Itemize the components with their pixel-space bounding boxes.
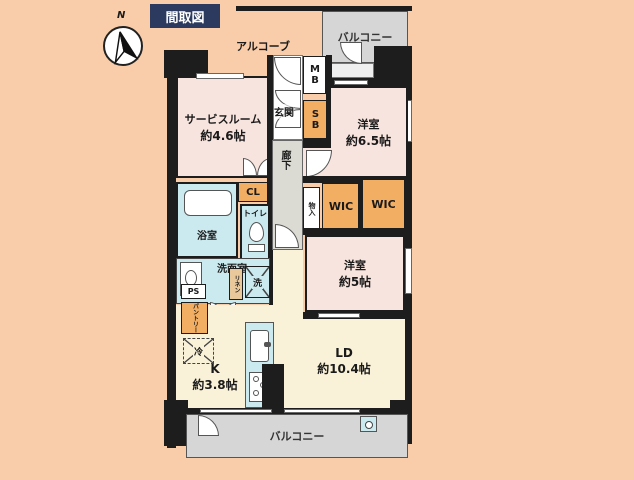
faucet-icon xyxy=(264,342,271,347)
wic-1: WIC xyxy=(322,183,360,229)
wall-block-bottomleft xyxy=(164,400,188,446)
room-name: 洋室 xyxy=(358,116,380,132)
washer-space: 洗 xyxy=(245,266,270,298)
entrance-label: 玄関 xyxy=(274,104,294,119)
closet-box: CL xyxy=(238,182,268,202)
toilet-room: トイレ xyxy=(240,204,270,262)
wic-1-label: WIC xyxy=(329,200,353,213)
sliding-door-segment xyxy=(200,409,272,413)
wall-segment xyxy=(358,179,362,229)
bathroom-label: 浴室 xyxy=(197,227,217,242)
wall-left xyxy=(167,52,176,448)
wall-segment xyxy=(303,228,412,235)
wall-segment xyxy=(303,138,328,148)
burner-icon xyxy=(253,376,259,382)
room-size: 約5帖 xyxy=(339,273,371,290)
pipe-space-label: PS xyxy=(188,287,200,296)
sliding-door-segment xyxy=(284,409,360,413)
service-room: サービスルーム 約4.6帖 xyxy=(176,76,270,178)
bedroom-65: 洋室 約6.5帖 xyxy=(329,86,408,179)
pipe-space: PS xyxy=(181,284,206,299)
porch-area xyxy=(330,63,374,78)
corridor-extension xyxy=(272,250,303,310)
alcove-label: アルコーブ xyxy=(236,38,290,54)
window-segment xyxy=(196,73,244,79)
room-name: 洋室 xyxy=(344,257,366,273)
closet-label: CL xyxy=(246,187,260,198)
bathtub-icon xyxy=(184,190,232,216)
toilet-tank-icon xyxy=(248,244,265,252)
compass-icon xyxy=(103,26,143,66)
room-name: LD xyxy=(298,346,390,360)
refrigerator-label: 冷 xyxy=(193,345,204,358)
shoe-box: SB xyxy=(303,100,327,140)
living-dining-label: LD 約10.4帖 xyxy=(298,346,390,377)
wic-2-label: WIC xyxy=(371,198,395,211)
sliding-door-segment xyxy=(318,313,360,318)
linen-label: リネン xyxy=(233,275,239,293)
wall-segment xyxy=(262,364,284,410)
toilet-label: トイレ xyxy=(243,208,267,219)
refrigerator-space: 冷 xyxy=(183,338,214,364)
room-size: 約4.6帖 xyxy=(200,127,245,144)
washer-label: 洗 xyxy=(252,276,263,289)
page-title: 間取図 xyxy=(150,4,220,28)
room-name: K xyxy=(182,362,248,376)
room-size: 約10.4帖 xyxy=(298,360,390,377)
window-segment xyxy=(405,248,412,294)
compass-north-label: N xyxy=(117,10,125,21)
pantry: パントリー xyxy=(181,302,208,334)
storage-label: 物入 xyxy=(308,202,315,216)
burner-icon xyxy=(253,390,259,396)
floor-plan: 間取図 N バルコニー アルコーブ サービスルーム 約4.6帖 玄関 MB SB xyxy=(0,0,634,480)
linen-cabinet: リネン xyxy=(229,268,243,300)
faucet-icon xyxy=(365,421,373,429)
faucet-box xyxy=(360,416,377,432)
bedroom-5: 洋室 約5帖 xyxy=(305,235,405,312)
kitchen-label: K 約3.8帖 xyxy=(182,362,248,393)
room-size: 約6.5帖 xyxy=(346,132,391,149)
room-name: サービスルーム xyxy=(185,111,262,127)
toilet-icon xyxy=(249,222,264,242)
bathroom: 浴室 xyxy=(176,182,238,258)
shoe-box-label: SB xyxy=(310,109,320,131)
pantry-label: パントリー xyxy=(192,303,198,333)
room-size: 約3.8帖 xyxy=(182,376,248,393)
meter-box: MB xyxy=(303,56,326,94)
wic-2: WIC xyxy=(362,179,405,229)
storage-box: 物入 xyxy=(303,187,320,231)
corridor-label: 廊下 xyxy=(279,150,289,170)
window-segment xyxy=(334,80,368,85)
meter-box-label: MB xyxy=(310,64,320,86)
balcony-bottom-label: バルコニー xyxy=(270,428,325,444)
